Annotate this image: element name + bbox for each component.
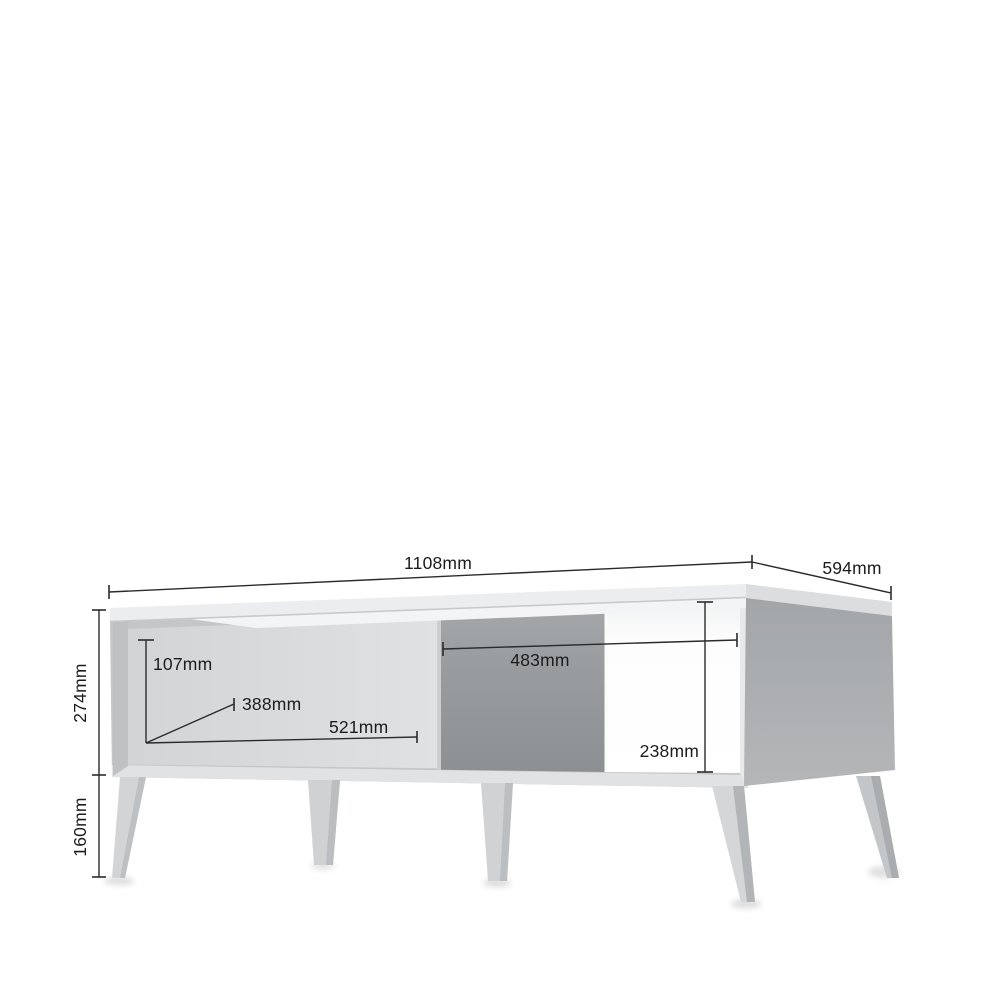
back-left-leg (308, 780, 340, 865)
body-height-label: 274mm (70, 663, 90, 722)
dim-left-heights: 274mm 160mm (70, 610, 106, 877)
coffee-table (104, 584, 900, 909)
overall-width-label: 1108mm (404, 553, 472, 573)
front-height-label: 107mm (153, 654, 212, 674)
overall-depth-label: 594mm (822, 558, 881, 578)
left-frame-strip (113, 622, 128, 777)
shelf-height-label: 238mm (640, 741, 699, 761)
front-diagonal-label: 388mm (242, 694, 301, 714)
shelf-width-label: 483mm (510, 650, 569, 670)
leg-height-label: 160mm (70, 797, 90, 856)
front-width-label: 521mm (329, 717, 388, 737)
shelf-interior-back (441, 604, 606, 772)
back-right-leg (856, 776, 899, 878)
front-right-leg (712, 786, 755, 902)
middle-leg (481, 783, 513, 881)
opening-left-edge (437, 617, 441, 770)
furniture-dimension-diagram: 1108mm 594mm 274mm 160mm 107mm 388mm (0, 0, 1000, 1000)
leg-shadow (104, 877, 134, 885)
front-left-leg (112, 777, 146, 878)
right-side-panel (744, 598, 895, 786)
diagram-svg: 1108mm 594mm 274mm 160mm 107mm 388mm (0, 0, 1000, 1000)
drawer-front-panel (128, 617, 437, 768)
